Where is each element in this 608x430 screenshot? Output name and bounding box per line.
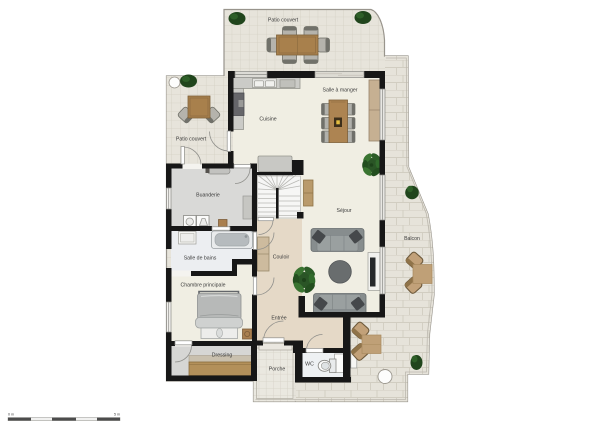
svg-text:0 m: 0 m xyxy=(8,413,14,417)
svg-text:Porche: Porche xyxy=(269,367,286,373)
svg-text:5 m: 5 m xyxy=(114,413,120,417)
svg-text:Couloir: Couloir xyxy=(273,255,290,261)
svg-text:Dressing: Dressing xyxy=(212,353,233,359)
svg-text:Séjour: Séjour xyxy=(337,208,352,214)
svg-text:Chambre principale: Chambre principale xyxy=(181,283,226,289)
svg-text:Buanderie: Buanderie xyxy=(196,193,220,199)
svg-text:Patio couvert: Patio couvert xyxy=(176,137,207,143)
svg-text:Salle de bains: Salle de bains xyxy=(184,256,217,262)
svg-text:Patio couvert: Patio couvert xyxy=(268,18,299,24)
svg-text:WC: WC xyxy=(305,362,314,368)
svg-text:Cuisine: Cuisine xyxy=(259,117,276,123)
svg-text:Entrée: Entrée xyxy=(271,316,286,322)
svg-text:Balcon: Balcon xyxy=(404,236,420,242)
svg-text:Salle à manger: Salle à manger xyxy=(323,88,358,94)
